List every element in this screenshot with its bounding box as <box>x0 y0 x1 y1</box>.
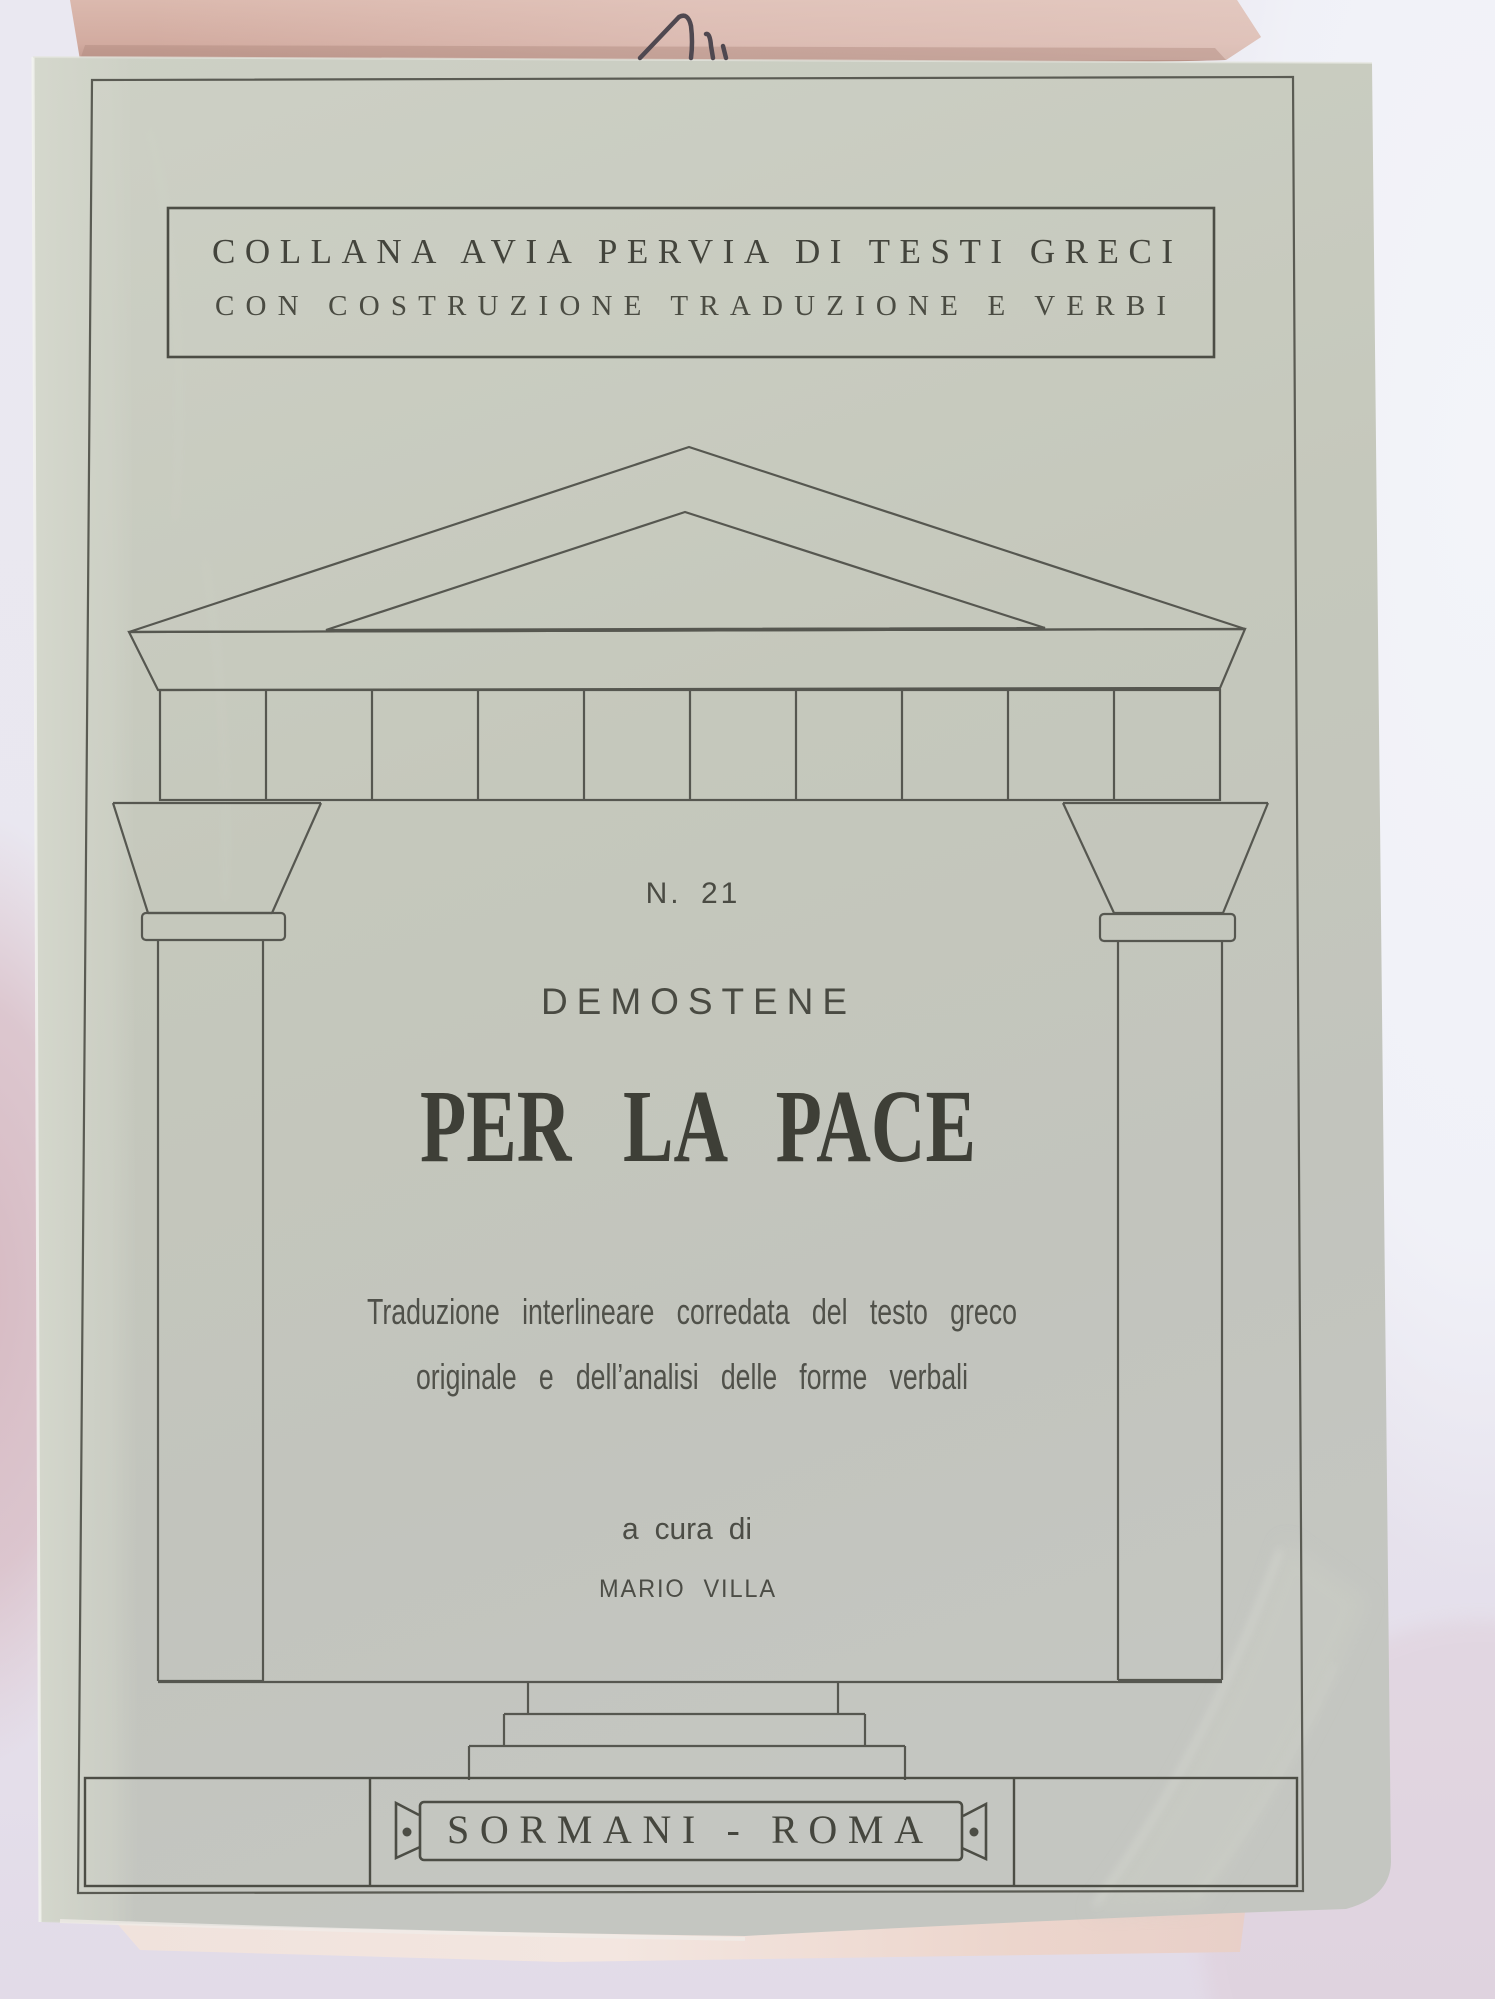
svg-text:DEMOSTENE: DEMOSTENE <box>541 981 857 1022</box>
svg-text:originale e dell’analisi delle: originale e dell’analisi delle forme ver… <box>416 1356 968 1397</box>
svg-text:CON COSTRUZIONE TRADUZIONE E V: CON COSTRUZIONE TRADUZIONE E VERBI <box>215 290 1177 322</box>
svg-text:N. 21: N. 21 <box>646 877 741 910</box>
svg-text:a cura di: a cura di <box>622 1511 752 1546</box>
svg-text:MARIO VILLA: MARIO VILLA <box>599 1575 777 1603</box>
svg-text:SORMANI - ROMA: SORMANI - ROMA <box>447 1807 931 1852</box>
svg-text:COLLANA AVIA PERVIA DI TESTI G: COLLANA AVIA PERVIA DI TESTI GRECI <box>212 232 1182 271</box>
svg-text:Traduzione interlineare corred: Traduzione interlineare corredata del te… <box>367 1291 1017 1332</box>
svg-text:PER LA PACE: PER LA PACE <box>420 1069 976 1184</box>
